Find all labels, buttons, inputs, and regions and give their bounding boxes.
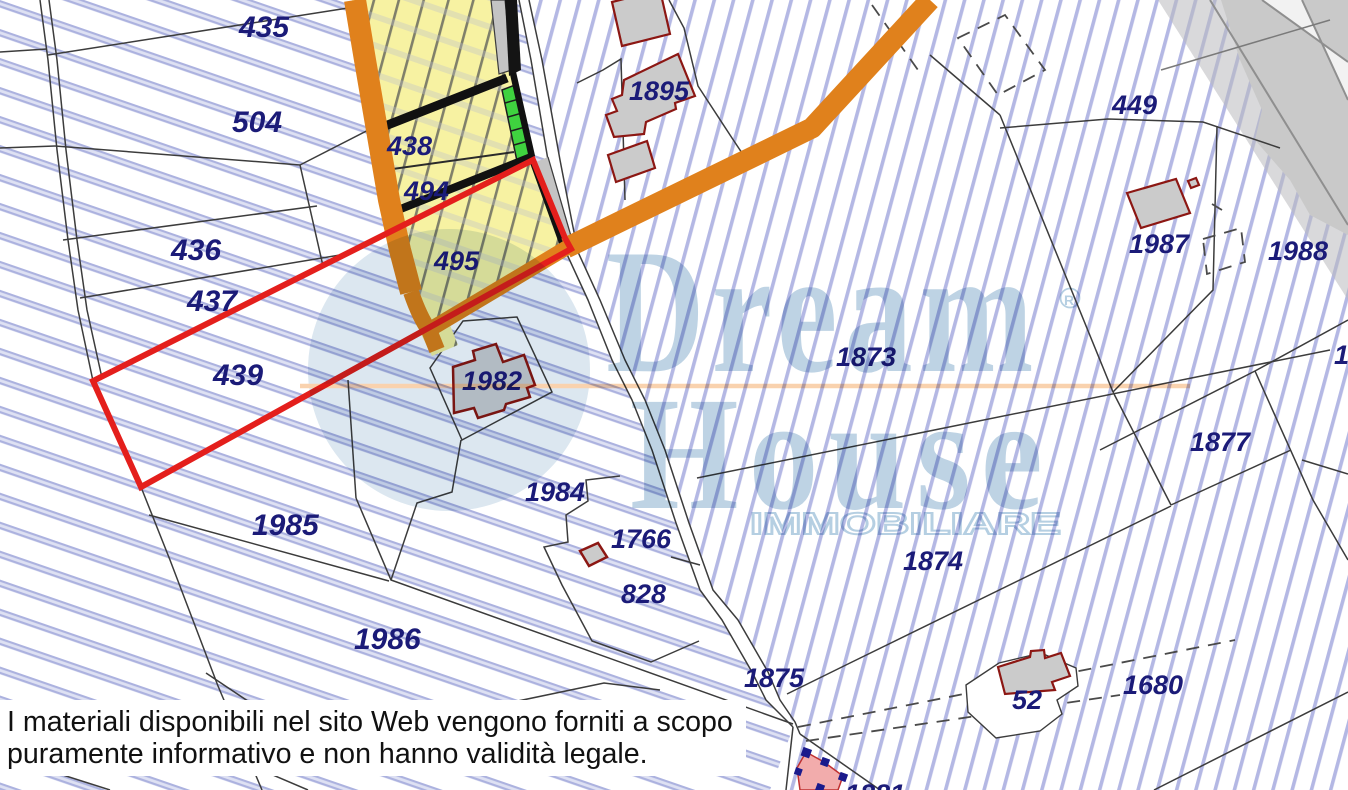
svg-text:IMMOBILIARE: IMMOBILIARE: [750, 506, 1061, 541]
svg-text:1986: 1986: [354, 623, 421, 656]
svg-text:1987: 1987: [1129, 229, 1191, 259]
svg-text:438: 438: [386, 131, 432, 161]
svg-text:1875: 1875: [744, 663, 805, 693]
svg-text:1877: 1877: [1190, 427, 1252, 457]
svg-text:828: 828: [621, 579, 666, 609]
svg-text:1874: 1874: [903, 546, 963, 576]
svg-text:puramente informativo e non ha: puramente informativo e non hanno validi…: [7, 738, 648, 770]
svg-text:494: 494: [403, 176, 449, 206]
svg-text:436: 436: [170, 234, 221, 267]
svg-text:I materiali disponibili nel si: I materiali disponibili nel sito Web ven…: [7, 706, 733, 738]
svg-text:52: 52: [1012, 685, 1042, 715]
svg-text:435: 435: [238, 11, 290, 44]
svg-text:1: 1: [1334, 340, 1348, 370]
svg-text:1881: 1881: [845, 779, 905, 790]
svg-text:504: 504: [232, 106, 282, 139]
svg-text:449: 449: [1111, 90, 1157, 120]
svg-text:1895: 1895: [629, 76, 690, 106]
svg-text:439: 439: [212, 359, 263, 392]
svg-text:1985: 1985: [252, 509, 320, 542]
svg-text:1988: 1988: [1268, 236, 1328, 266]
svg-text:437: 437: [186, 285, 238, 318]
svg-text:R: R: [1064, 292, 1074, 308]
svg-text:1680: 1680: [1123, 670, 1183, 700]
